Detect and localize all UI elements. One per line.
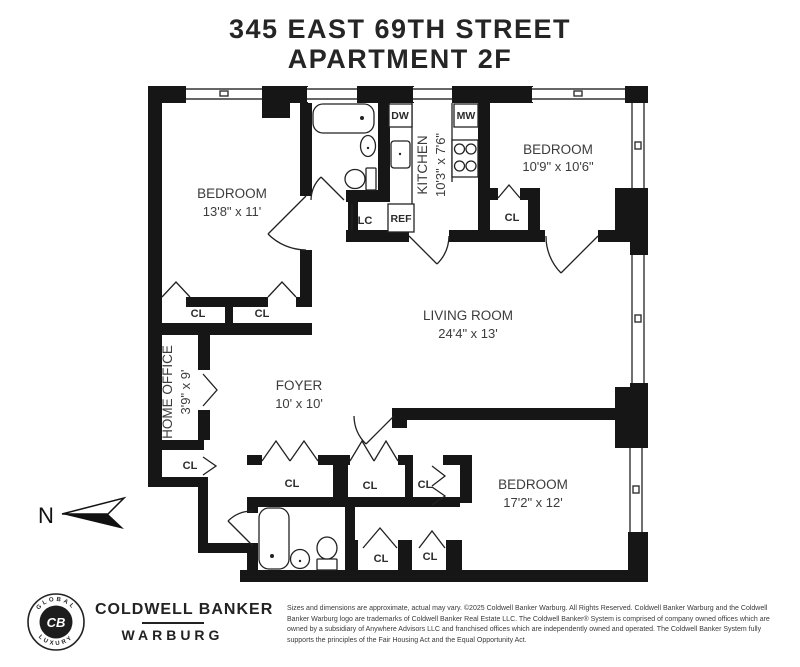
window-bedroom1 bbox=[186, 87, 262, 102]
closet-label: CL bbox=[191, 308, 206, 320]
window-living bbox=[629, 255, 647, 383]
seal-monogram: CB bbox=[47, 615, 66, 630]
svg-text:13'8" x 11': 13'8" x 11' bbox=[203, 204, 262, 219]
room-label-home-office: HOME OFFICE 3'9" x 9' bbox=[160, 345, 193, 439]
room-label-bedroom2: BEDROOM 10'9" x 10'6" bbox=[522, 142, 594, 174]
svg-text:24'4" x 13': 24'4" x 13' bbox=[438, 326, 497, 341]
closet-label: CL bbox=[505, 212, 520, 224]
door-bathroom2 bbox=[228, 511, 253, 546]
refrigerator-label: REF bbox=[391, 213, 413, 225]
svg-text:KITCHEN: KITCHEN bbox=[415, 135, 430, 194]
closet-label: CL bbox=[255, 308, 270, 320]
room-label-bedroom3: BEDROOM 17'2" x 12' bbox=[498, 477, 568, 510]
room-label-bedroom1: BEDROOM 13'8" x 11' bbox=[197, 186, 267, 219]
closet-label: CL bbox=[423, 551, 438, 563]
stove-icon bbox=[452, 140, 478, 177]
window-bathroom1 bbox=[307, 87, 357, 102]
toilet1-icon bbox=[345, 168, 376, 190]
door-bathroom1 bbox=[311, 177, 344, 200]
microwave-label: MW bbox=[457, 110, 476, 122]
legal-disclaimer: Sizes and dimensions are approximate, ac… bbox=[287, 604, 785, 646]
north-arrow-bottom bbox=[62, 514, 124, 529]
coldwell-banker-seal: GLOBAL LUXURY CB bbox=[26, 592, 86, 652]
svg-text:BEDROOM: BEDROOM bbox=[498, 477, 568, 492]
sink2-icon bbox=[291, 550, 310, 569]
window-bedroom2-top bbox=[532, 87, 625, 102]
svg-text:10' x 10': 10' x 10' bbox=[275, 396, 323, 411]
brand-line2: WARBURG bbox=[95, 627, 250, 643]
svg-text:17'2" x 12': 17'2" x 12' bbox=[503, 495, 562, 510]
dishwasher-label: DW bbox=[391, 110, 409, 122]
room-label-kitchen: KITCHEN 10'3" x 7'6" bbox=[415, 133, 448, 197]
closet-label: CL bbox=[363, 480, 378, 492]
room-label-foyer: FOYER 10' x 10' bbox=[275, 378, 323, 411]
svg-text:3'9" x 9': 3'9" x 9' bbox=[178, 370, 193, 415]
closet-label: CL bbox=[285, 478, 300, 490]
svg-text:10'9" x 10'6": 10'9" x 10'6" bbox=[522, 159, 594, 174]
brand-divider bbox=[142, 622, 204, 624]
north-arrow-top bbox=[62, 498, 124, 514]
floorplan-page: 345 EAST 69TH STREET APARTMENT 2F bbox=[0, 0, 800, 667]
svg-text:HOME OFFICE: HOME OFFICE bbox=[160, 345, 175, 439]
closet-label: CL bbox=[374, 553, 389, 565]
svg-text:FOYER: FOYER bbox=[276, 378, 323, 393]
closet-label: CL bbox=[418, 479, 433, 491]
door-bedroom1 bbox=[268, 196, 306, 250]
door-bedroom3 bbox=[354, 416, 394, 444]
linen-closet-label: LC bbox=[358, 215, 373, 227]
svg-text:10'3" x 7'6": 10'3" x 7'6" bbox=[433, 133, 448, 197]
toilet2-icon bbox=[317, 537, 337, 570]
closet-label: CL bbox=[183, 460, 198, 472]
window-kitchen bbox=[413, 87, 452, 102]
svg-text:BEDROOM: BEDROOM bbox=[523, 142, 593, 157]
svg-text:LIVING ROOM: LIVING ROOM bbox=[423, 308, 513, 323]
sink1-icon bbox=[361, 136, 376, 157]
brand-wordmark: COLDWELL BANKER WARBURG bbox=[95, 601, 250, 643]
north-arrow: N bbox=[38, 498, 124, 529]
window-bedroom3 bbox=[627, 448, 645, 532]
room-labels: BEDROOM 13'8" x 11' BEDROOM 10'9" x 10'6… bbox=[160, 110, 594, 565]
bathtub1-icon bbox=[313, 104, 374, 133]
door-kitchen bbox=[409, 236, 449, 264]
door-bedroom2 bbox=[546, 236, 598, 273]
room-label-living: LIVING ROOM 24'4" x 13' bbox=[423, 308, 513, 341]
brand-line1: COLDWELL BANKER bbox=[95, 601, 250, 619]
window-bedroom2-right bbox=[629, 103, 647, 188]
north-label: N bbox=[38, 503, 54, 528]
bathtub2-icon bbox=[259, 508, 289, 569]
floorplan-drawing: BEDROOM 13'8" x 11' BEDROOM 10'9" x 10'6… bbox=[0, 0, 800, 667]
svg-text:BEDROOM: BEDROOM bbox=[197, 186, 267, 201]
